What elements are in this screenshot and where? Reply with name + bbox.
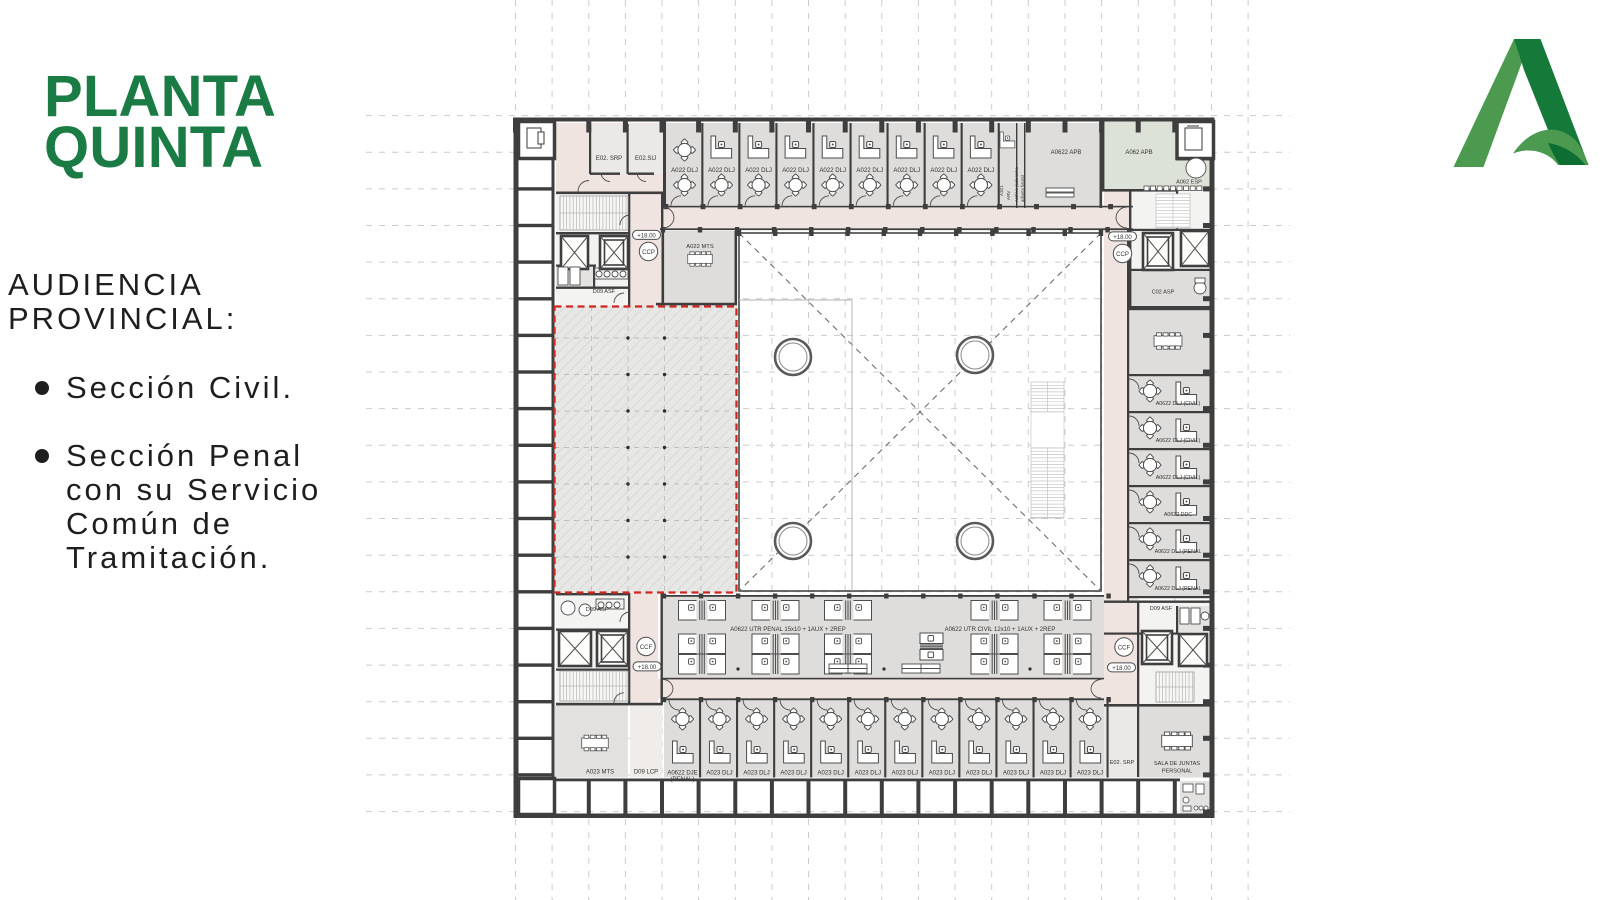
svg-text:PERSONAL: PERSONAL	[1162, 769, 1192, 775]
svg-text:Archivo (sala toma: Archivo (sala toma	[1014, 167, 1019, 202]
svg-text:D09 ASF: D09 ASF	[586, 607, 609, 613]
svg-text:CCF: CCF	[640, 645, 653, 651]
svg-text:A023 DLJ: A023 DLJ	[780, 771, 806, 777]
svg-text:A0622 DJE: A0622 DJE	[667, 771, 697, 777]
svg-text:E02. SRP: E02. SRP	[1110, 760, 1135, 766]
svg-text:A0622 DLJ (CIVIL): A0622 DLJ (CIVIL)	[1156, 475, 1201, 481]
svg-text:D09 LCP: D09 LCP	[634, 770, 658, 776]
svg-text:A022 DLJ: A022 DLJ	[819, 167, 846, 174]
svg-text:adjunta futura): adjunta futura)	[1020, 174, 1025, 202]
svg-text:E02.SIJ: E02.SIJ	[635, 156, 656, 162]
svg-text:A022 MTS: A022 MTS	[686, 244, 714, 250]
svg-text:A022 DLJ: A022 DLJ	[893, 167, 920, 174]
svg-text:A023 DLJ: A023 DLJ	[1003, 771, 1029, 777]
svg-text:+18.00: +18.00	[637, 233, 656, 239]
svg-text:A023 DLJ: A023 DLJ	[855, 771, 881, 777]
svg-text:A023 DLJ: A023 DLJ	[892, 771, 918, 777]
svg-text:A0622 UTR CIVIL 12x10 + 1AUX +: A0622 UTR CIVIL 12x10 + 1AUX + 2REP	[945, 627, 1056, 633]
svg-text:A0622 DLJ (CIVIL): A0622 DLJ (CIVIL)	[1156, 438, 1201, 444]
svg-text:A023 DLJ: A023 DLJ	[706, 771, 732, 777]
svg-text:A022 DLJ: A022 DLJ	[856, 167, 883, 174]
svg-text:+18.00: +18.00	[1112, 666, 1131, 672]
svg-text:A023 DLJ: A023 DLJ	[1077, 771, 1103, 777]
svg-text:A022 DLJ: A022 DLJ	[708, 167, 735, 174]
svg-text:CCP: CCP	[642, 250, 655, 256]
svg-text:A0622 DLJ (PENAL: A0622 DLJ (PENAL	[1155, 549, 1202, 555]
svg-text:CCP: CCP	[1116, 252, 1129, 258]
svg-text:ARV: ARV	[1006, 190, 1011, 200]
svg-text:A022 DLJ: A022 DLJ	[930, 167, 957, 174]
svg-text:A023 DLJ: A023 DLJ	[929, 771, 955, 777]
svg-text:A022 DLJ: A022 DLJ	[745, 167, 772, 174]
svg-text:A023 DLJ: A023 DLJ	[1040, 771, 1066, 777]
svg-text:+18.00: +18.00	[638, 665, 657, 671]
svg-text:D09 ASF: D09 ASF	[1150, 606, 1173, 612]
svg-text:(PENAL): (PENAL)	[671, 777, 695, 783]
svg-text:A0622 UTR PENAL 15x10 + 1AUX +: A0622 UTR PENAL 15x10 + 1AUX + 2REP	[730, 627, 846, 633]
svg-text:A023 MTS: A023 MTS	[586, 770, 614, 776]
svg-text:A0622 APB: A0622 APB	[1051, 150, 1082, 156]
svg-text:A022 DLJ: A022 DLJ	[671, 167, 698, 174]
svg-text:+18.00: +18.00	[1113, 235, 1132, 241]
svg-text:A023 DLJ: A023 DLJ	[743, 771, 769, 777]
svg-text:A062 APB: A062 APB	[1125, 150, 1152, 156]
svg-text:A0622 DDC: A0622 DDC	[1164, 512, 1192, 518]
svg-text:A0622 DLJ (CIVIL): A0622 DLJ (CIVIL)	[1156, 401, 1201, 407]
svg-text:A062 ESP: A062 ESP	[1176, 180, 1202, 186]
svg-text:SALA DE JUNTAS: SALA DE JUNTAS	[1154, 761, 1200, 767]
svg-text:A321: A321	[999, 185, 1004, 196]
svg-text:A023 DLJ: A023 DLJ	[818, 771, 844, 777]
svg-text:A0622 DLJ (PENAL: A0622 DLJ (PENAL	[1155, 586, 1202, 592]
svg-text:CCF: CCF	[1118, 645, 1131, 651]
svg-text:A023 DLJ: A023 DLJ	[966, 771, 992, 777]
svg-text:C02 ASP: C02 ASP	[1152, 290, 1175, 296]
svg-text:A022 DLJ: A022 DLJ	[782, 167, 809, 174]
svg-text:E02. SRP: E02. SRP	[596, 156, 622, 162]
svg-text:A022 DLJ: A022 DLJ	[968, 167, 995, 174]
svg-text:D09 ASF: D09 ASF	[593, 289, 616, 295]
